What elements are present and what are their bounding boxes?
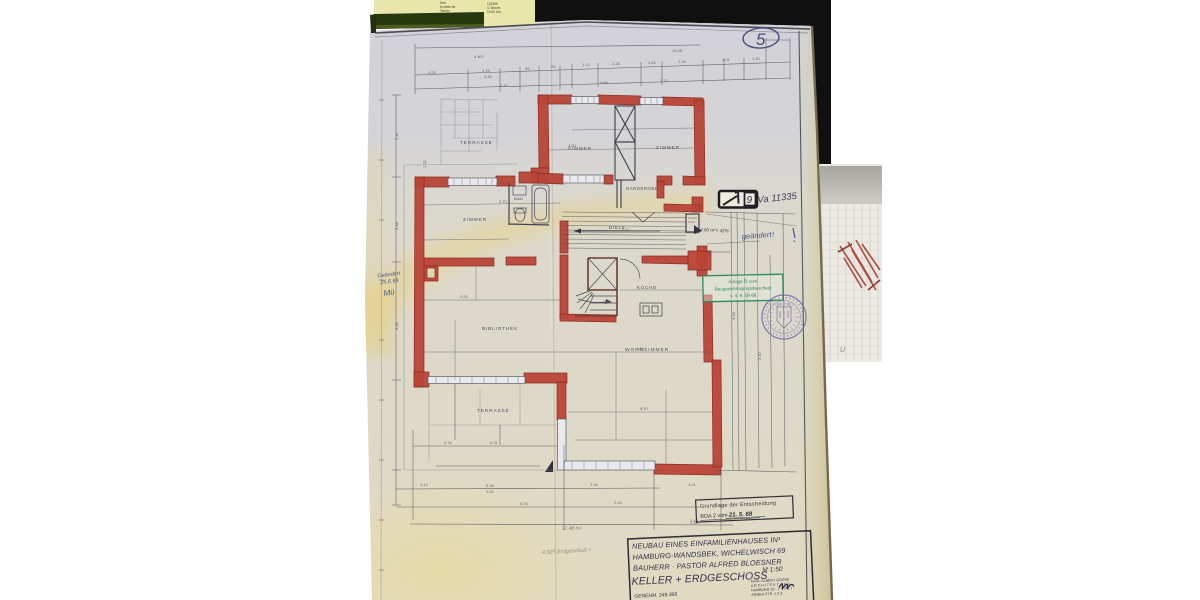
- svg-text:2.34: 2.34: [444, 440, 453, 445]
- svg-text:10.00 Uhr: 10.00 Uhr: [487, 10, 502, 14]
- svg-text:1.13: 1.13: [582, 62, 591, 67]
- svg-text:1.12: 1.12: [420, 482, 429, 487]
- svg-text:TERRASSE: TERRASSE: [460, 140, 493, 145]
- svg-text:BIBLIOTHEK: BIBLIOTHEK: [482, 326, 518, 331]
- svg-text:ZIMMER: ZIMMER: [463, 217, 487, 222]
- svg-text:GARDEROBE: GARDEROBE: [626, 186, 658, 191]
- svg-text:ZIMMER: ZIMMER: [656, 145, 680, 150]
- svg-text:2.43: 2.43: [614, 500, 623, 505]
- svg-text:TERRASSE: TERRASSE: [477, 408, 510, 413]
- svg-text:4.60: 4.60: [636, 346, 645, 351]
- svg-text:1.01: 1.01: [688, 482, 697, 487]
- svg-text:1.25: 1.25: [422, 159, 427, 168]
- svg-text:3.20: 3.20: [460, 294, 469, 299]
- svg-text:3.44: 3.44: [394, 221, 399, 230]
- svg-text:2.88: 2.88: [600, 80, 609, 85]
- svg-text:1.40: 1.40: [752, 56, 761, 61]
- svg-text:4.407: 4.407: [474, 54, 485, 59]
- svg-text:2.26: 2.26: [678, 59, 687, 64]
- svg-text:4.40: 4.40: [394, 321, 399, 330]
- svg-text:5: 5: [756, 30, 766, 49]
- svg-text:4.45: 4.45: [484, 74, 493, 79]
- svg-text:Mü: Mü: [383, 287, 396, 297]
- svg-text:KÜCHE: KÜCHE: [637, 284, 657, 290]
- svg-text:2.70: 2.70: [499, 199, 508, 204]
- svg-text:1.76: 1.76: [482, 68, 491, 73]
- svg-text:10.46: 10.46: [672, 48, 683, 53]
- svg-text:3.36: 3.36: [486, 483, 495, 488]
- svg-text:4.38: 4.38: [731, 311, 736, 320]
- svg-text:4.90: 4.90: [568, 143, 577, 148]
- svg-text:6.10: 6.10: [640, 406, 649, 411]
- svg-text:v. 4. 6. 19 68: v. 4. 6. 19 68: [730, 293, 757, 299]
- svg-text:3.10: 3.10: [757, 351, 762, 360]
- svg-text:9: 9: [747, 195, 753, 206]
- svg-text:2.42: 2.42: [500, 83, 509, 88]
- svg-text:2.01: 2.01: [490, 440, 499, 445]
- svg-text:2.26: 2.26: [612, 61, 621, 66]
- svg-text:Termin: Termin: [440, 9, 450, 13]
- svg-text:2.47: 2.47: [394, 131, 399, 140]
- svg-text:.36: .36: [524, 66, 530, 71]
- svg-text:11.48 m²: 11.48 m²: [562, 526, 582, 532]
- svg-text:BAD: BAD: [514, 196, 523, 201]
- svg-text:4.25: 4.25: [428, 70, 437, 75]
- svg-text:1.24: 1.24: [648, 60, 657, 65]
- svg-text:1.01: 1.01: [722, 57, 731, 62]
- svg-text:BOA 2 vom: BOA 2 vom: [700, 513, 728, 520]
- svg-text:M 1:50: M 1:50: [762, 566, 783, 574]
- svg-text:1.36: 1.36: [590, 482, 599, 487]
- svg-text:2.01: 2.01: [486, 489, 495, 494]
- svg-text:.90: .90: [550, 64, 556, 69]
- svg-text:6.23: 6.23: [520, 501, 529, 506]
- svg-text:4.41: 4.41: [622, 227, 631, 232]
- svg-text:WOHNZIMMER: WOHNZIMMER: [625, 347, 669, 353]
- svg-text:2.12: 2.12: [660, 78, 669, 83]
